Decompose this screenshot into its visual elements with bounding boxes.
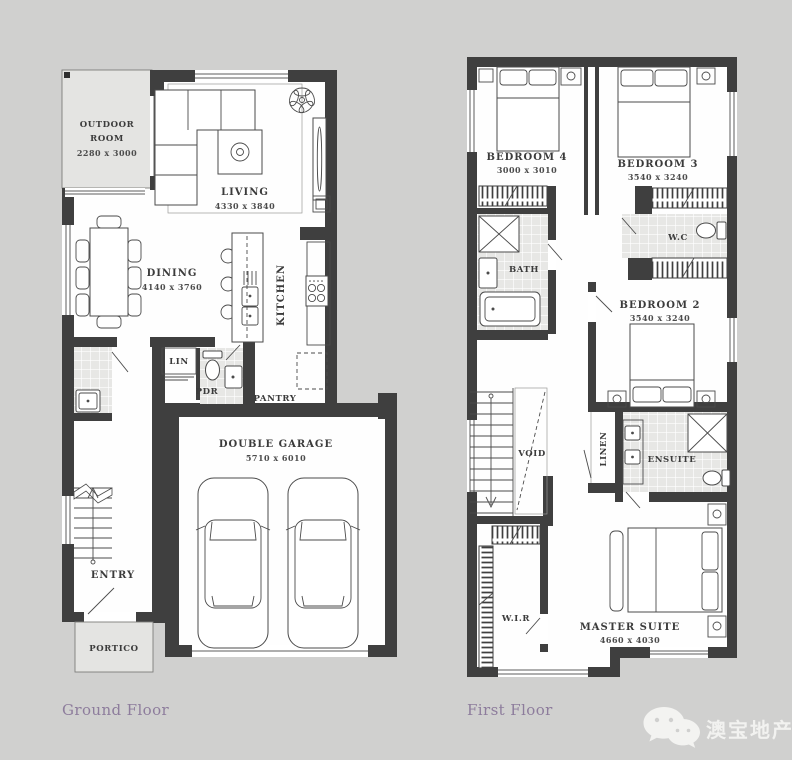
master-label: MASTER SUITE <box>580 622 681 633</box>
ground-floor-caption: Ground Floor <box>62 701 170 719</box>
bedroom4-label: BEDROOM 4 <box>487 152 568 163</box>
bedroom2-dims: 3540 x 3240 <box>630 313 690 323</box>
basin <box>225 366 242 388</box>
portico-label: PORTICO <box>89 644 138 654</box>
entry-label: ENTRY <box>91 570 135 581</box>
bedroom4-dims: 3000 x 3010 <box>497 165 557 175</box>
room-wc: W.C <box>622 214 727 258</box>
pdr-label: PDR <box>196 387 219 397</box>
bedroom2-label: BEDROOM 2 <box>620 300 701 311</box>
pantry-label: PANTRY <box>254 394 297 404</box>
dining-label: DINING <box>147 268 198 279</box>
garage-label: DOUBLE GARAGE <box>219 439 333 450</box>
floorplan-canvas: OUTDOOR ROOM 2280 x 3000 <box>0 0 792 760</box>
car <box>286 478 360 648</box>
robe <box>479 186 547 206</box>
bed <box>618 67 690 157</box>
wir-label: W.I.R <box>501 614 531 624</box>
lin-label: LIN <box>169 357 189 367</box>
kitchen-island <box>232 233 263 342</box>
bathtub <box>480 292 540 326</box>
living-dims: 4330 x 3840 <box>215 201 275 211</box>
room-outdoor: OUTDOOR ROOM 2280 x 3000 <box>62 70 152 188</box>
shower <box>688 414 727 452</box>
basin <box>479 258 497 288</box>
robe <box>652 188 727 208</box>
dining-dims: 4140 x 3760 <box>142 282 202 292</box>
outdoor-label-2: ROOM <box>90 134 124 144</box>
wc-label: W.C <box>667 233 688 243</box>
outdoor-label-1: OUTDOOR <box>80 120 135 130</box>
bed <box>630 324 694 407</box>
bedroom3-label: BEDROOM 3 <box>618 159 699 170</box>
linen-label: LINEN <box>599 432 609 467</box>
outdoor-post <box>64 72 70 78</box>
toilet <box>703 470 730 486</box>
shower <box>479 216 519 252</box>
watermark-brand: 澳宝地产 <box>706 718 792 742</box>
coffee-table <box>218 130 262 174</box>
cooktop <box>306 276 328 306</box>
living-label: LIVING <box>221 187 269 198</box>
room-portico: PORTICO <box>75 622 153 672</box>
outdoor-dims: 2280 x 3000 <box>77 148 137 158</box>
first-floor-plan: BEDROOM 4 3000 x 3010 BEDROOM 3 3540 x 3… <box>467 57 737 719</box>
void-label: VOID <box>517 449 546 459</box>
robe <box>479 546 493 668</box>
room-powder: PDR <box>196 345 243 404</box>
car <box>196 478 270 648</box>
ensuite-label: ENSUITE <box>648 455 697 465</box>
first-floor-caption: First Floor <box>467 701 553 719</box>
bedroom3-dims: 3540 x 3240 <box>628 172 688 182</box>
floorplan-page: OUTDOOR ROOM 2280 x 3000 <box>0 0 792 760</box>
master-dims: 4660 x 4030 <box>600 635 660 645</box>
tv-unit <box>313 118 326 200</box>
garage-dims: 5710 x 6010 <box>246 453 306 463</box>
toilet <box>697 222 727 239</box>
robe <box>652 258 727 278</box>
kitchen-label: KITCHEN <box>276 264 287 326</box>
bath-label: BATH <box>509 265 539 275</box>
bed <box>497 67 559 151</box>
